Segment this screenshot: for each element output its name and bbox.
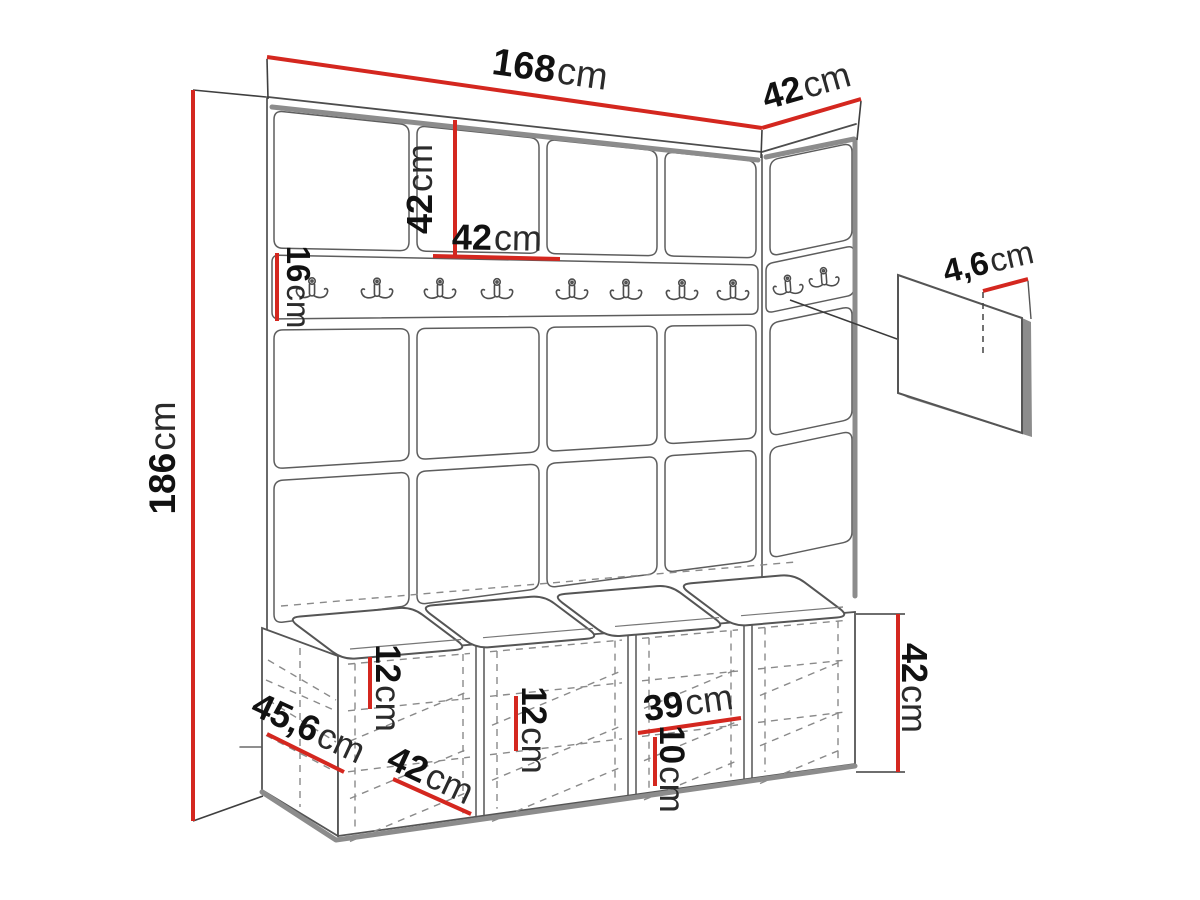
- height-top-tick: [193, 90, 266, 97]
- upholstered-panel: [274, 473, 409, 623]
- height-bottom-tick: [193, 796, 263, 821]
- diagram-canvas: 168cm42cm42cm42cm16cm186cm4,6cm12cm12cm3…: [0, 0, 1200, 900]
- furniture-dimension-diagram: 168cm42cm42cm42cm16cm186cm4,6cm12cm12cm3…: [0, 0, 1200, 900]
- upholstered-panel: [665, 451, 756, 572]
- dim-label-side-panel-width: 42cm: [757, 53, 855, 117]
- upholstered-panel-side: [770, 308, 852, 435]
- upholstered-panel: [417, 327, 539, 459]
- dim-label-panel-width: 42cm: [452, 216, 543, 259]
- upholstered-panel: [417, 464, 539, 603]
- dim-label-hook-rail-height: 16cm: [281, 246, 318, 329]
- upholstered-panel-side: [770, 144, 852, 254]
- dim-label-bench-shelf-gap-top: 12cm: [369, 644, 408, 732]
- upholstered-panel: [665, 153, 756, 258]
- upholstered-panel-side: [770, 432, 852, 556]
- upholstered-panel: [547, 457, 657, 587]
- dim-label-total-height: 186cm: [142, 401, 183, 514]
- extension-line: [857, 101, 861, 140]
- dim-label-bench-height: 42cm: [895, 643, 936, 733]
- detail-extension-line: [1028, 281, 1031, 319]
- detail-panel-face: [898, 275, 1022, 433]
- extension-line: [267, 59, 268, 99]
- upholstered-panel: [547, 326, 657, 451]
- upholstered-panel: [665, 325, 756, 443]
- upholstered-panel: [274, 329, 409, 468]
- dim-label-panel-height: 42cm: [399, 144, 440, 234]
- dim-label-bench-shelf-gap-middle: 12cm: [515, 686, 554, 774]
- dim-label-bench-shelf-gap-bottom: 10cm: [653, 725, 692, 813]
- extension-line: [761, 130, 762, 158]
- upholstered-panel: [547, 140, 657, 255]
- dimension-line-hook-panel-offset: [983, 279, 1028, 291]
- upholstered-panel: [274, 112, 409, 251]
